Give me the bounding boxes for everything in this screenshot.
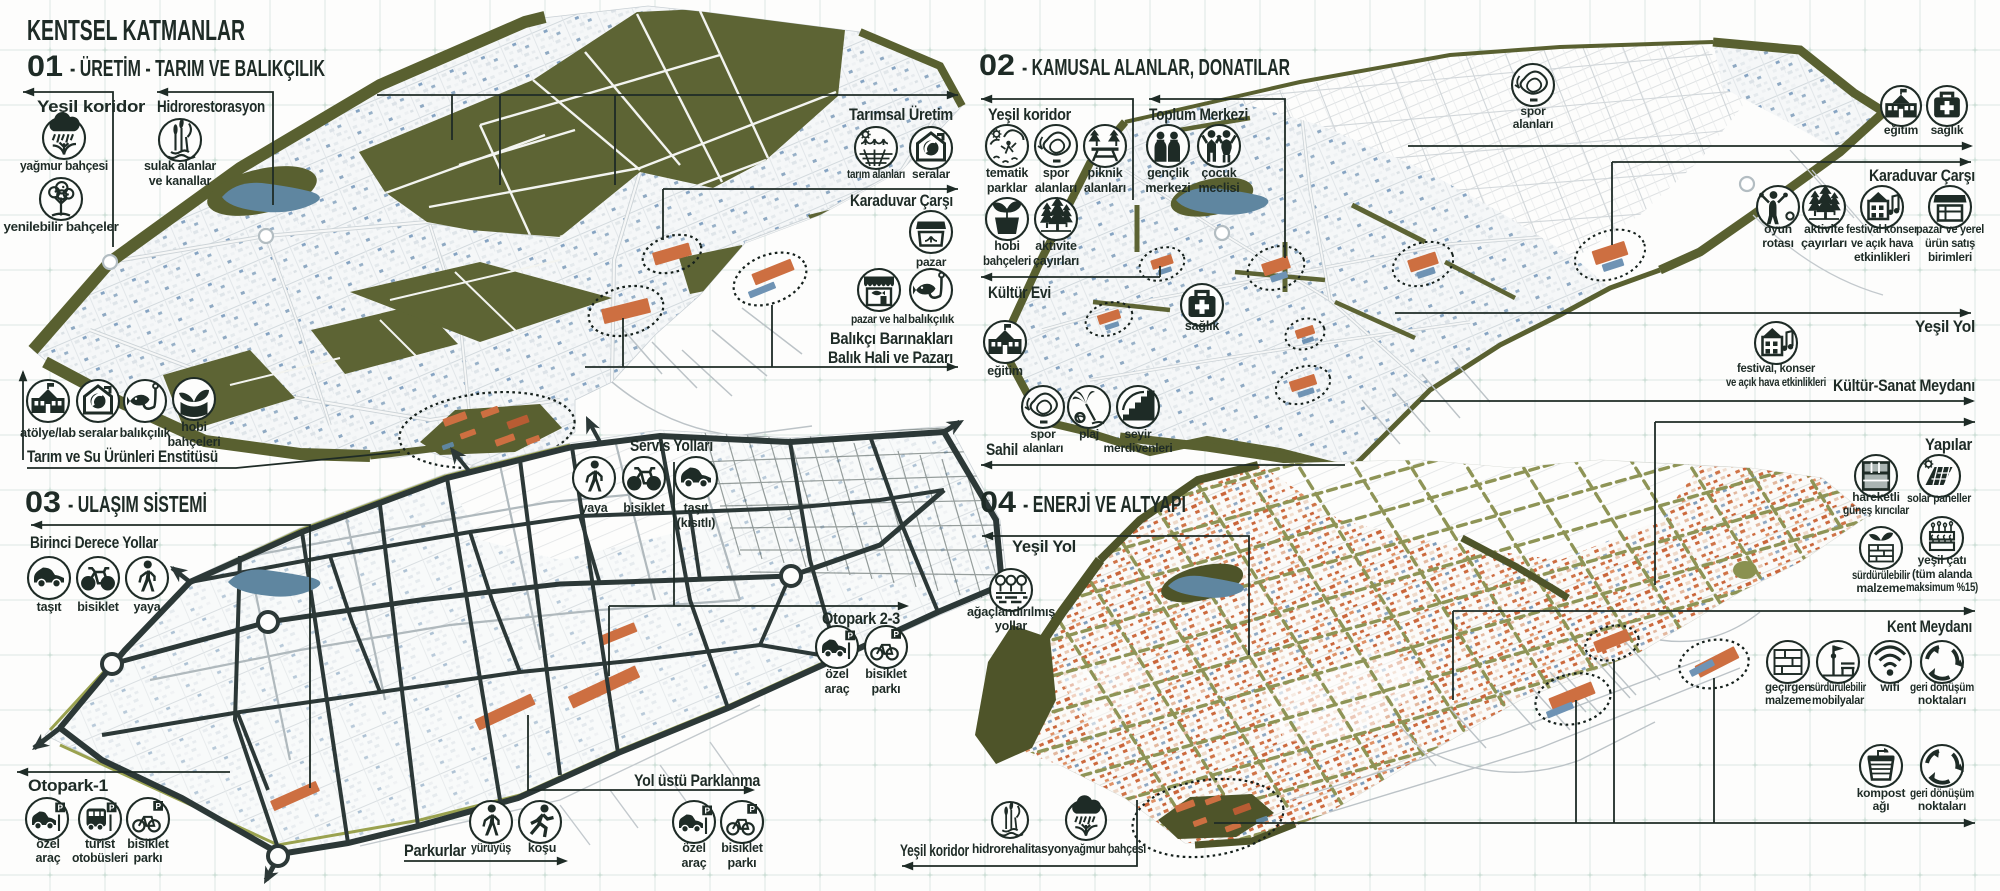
svg-text:aktivite: aktivite — [1035, 239, 1077, 253]
svg-text:sağlık: sağlık — [1185, 319, 1219, 333]
svg-text:Kültür Evi: Kültür Evi — [988, 284, 1051, 302]
svg-text:geçirgen: geçirgen — [1765, 680, 1811, 694]
svg-text:yürüyüş: yürüyüş — [471, 841, 511, 855]
svg-text:sürdürülebilir: sürdürülebilir — [1810, 680, 1866, 694]
svg-text:alanları: alanları — [1035, 181, 1077, 195]
svg-text:03: 03 — [25, 486, 61, 519]
svg-text:noktaları: noktaları — [1918, 693, 1966, 707]
svg-text:atölye/lab: atölye/lab — [20, 426, 76, 440]
svg-text:Birinci Derece Yollar: Birinci Derece Yollar — [30, 534, 159, 552]
svg-text:spor: spor — [1030, 427, 1056, 441]
svg-text:noktaları: noktaları — [1918, 799, 1966, 813]
svg-text:Tarım ve Su Ürünleri Enstitüsü: Tarım ve Su Ürünleri Enstitüsü — [27, 447, 218, 466]
svg-text:çayırları: çayırları — [1801, 236, 1847, 250]
svg-text:alanları: alanları — [1513, 117, 1553, 131]
svg-text:tematik: tematik — [986, 166, 1029, 180]
svg-text:yenilebilir bahçeler: yenilebilir bahçeler — [4, 220, 119, 234]
svg-text:Yeşil koridor: Yeşil koridor — [37, 98, 146, 116]
svg-text:P: P — [57, 803, 63, 812]
svg-text:malzeme: malzeme — [1765, 693, 1812, 707]
svg-text:ürün satış: ürün satış — [1925, 236, 1976, 250]
svg-text:spor: spor — [1520, 104, 1546, 118]
svg-text:KENTSEL KATMANLAR: KENTSEL KATMANLAR — [27, 15, 245, 47]
svg-text:01: 01 — [27, 50, 63, 83]
svg-text:etkinlikleri: etkinlikleri — [1854, 250, 1910, 264]
svg-text:piknik: piknik — [1088, 166, 1123, 180]
svg-text:geri dönüşüm: geri dönüşüm — [1910, 680, 1974, 694]
svg-text:aktivite: aktivite — [1804, 222, 1844, 236]
svg-text:festival, konser: festival, konser — [1737, 361, 1816, 375]
svg-text:Yol üstü Parklanma: Yol üstü Parklanma — [634, 772, 761, 790]
svg-text:parkı: parkı — [728, 856, 757, 870]
svg-text:araç: araç — [36, 851, 61, 865]
svg-text:(kısıtlı): (kısıtlı) — [677, 516, 716, 530]
svg-text:Balık Hali ve Pazarı: Balık Hali ve Pazarı — [828, 349, 953, 367]
svg-text:parklar: parklar — [987, 181, 1028, 195]
svg-text:çocuk: çocuk — [1201, 166, 1236, 180]
svg-text:seyir: seyir — [1124, 427, 1152, 441]
svg-text:Karaduvar Çarşı: Karaduvar Çarşı — [850, 192, 953, 210]
svg-text:araç: araç — [825, 682, 850, 696]
svg-text:balıkçılık: balıkçılık — [120, 426, 171, 440]
svg-text:merdivenleri: merdivenleri — [1104, 441, 1173, 455]
svg-text:hobi: hobi — [181, 420, 207, 434]
svg-text:otobüsleri: otobüsleri — [72, 851, 128, 865]
svg-text:turist: turist — [85, 837, 116, 851]
svg-text:Hidrorestorasyon: Hidrorestorasyon — [157, 98, 265, 116]
svg-text:wifi: wifi — [1879, 680, 1899, 694]
svg-text:yağmur bahçesi: yağmur bahçesi — [1068, 842, 1146, 856]
svg-text:malzeme: malzeme — [1856, 581, 1906, 595]
svg-text:pazar ve hal: pazar ve hal — [851, 312, 907, 326]
svg-text:02: 02 — [979, 49, 1015, 82]
svg-text:P: P — [109, 803, 115, 812]
svg-text:Kent Meydanı: Kent Meydanı — [1887, 618, 1972, 636]
svg-text:pazar: pazar — [916, 255, 947, 269]
svg-text:meclisi: meclisi — [1199, 181, 1240, 195]
svg-text:hareketli: hareketli — [1852, 490, 1900, 504]
svg-text:Karaduvar Çarşı: Karaduvar Çarşı — [1869, 167, 1975, 185]
svg-text:gençlik: gençlik — [1147, 166, 1189, 180]
svg-text:kompost: kompost — [1857, 786, 1906, 800]
svg-text:özel: özel — [825, 667, 849, 681]
svg-text:rotası: rotası — [1762, 236, 1793, 250]
svg-text:özel: özel — [682, 841, 706, 855]
svg-text:taşıt: taşıt — [684, 501, 710, 515]
svg-text:parkı: parkı — [872, 682, 901, 696]
svg-text:alanları: alanları — [1084, 181, 1126, 195]
svg-text:eğitim: eğitim — [1884, 123, 1918, 137]
svg-text:seralar: seralar — [78, 426, 118, 440]
svg-text:maksimum %15): maksimum %15) — [1906, 580, 1978, 594]
svg-text:P: P — [893, 630, 899, 639]
svg-text:bisiklet: bisiklet — [865, 667, 908, 681]
svg-text:parkı: parkı — [134, 851, 163, 865]
svg-text:sağlık: sağlık — [1931, 123, 1964, 137]
svg-text:(tüm alanda: (tüm alanda — [1912, 567, 1973, 581]
svg-text:Servis Yolları: Servis Yolları — [630, 437, 713, 455]
svg-text:alanları: alanları — [1023, 441, 1063, 455]
svg-text:Kültür-Sanat Meydanı: Kültür-Sanat Meydanı — [1833, 377, 1975, 395]
svg-text:P: P — [749, 805, 755, 814]
svg-text:pazar ve yerel: pazar ve yerel — [1916, 222, 1984, 236]
svg-text:bahçeleri: bahçeleri — [167, 435, 220, 449]
svg-text:yollar: yollar — [995, 619, 1027, 633]
svg-text:yaya: yaya — [580, 501, 608, 515]
svg-text:ve açık hava etkinlikleri: ve açık hava etkinlikleri — [1726, 375, 1826, 389]
svg-text:mobilyalar: mobilyalar — [1812, 693, 1865, 707]
svg-text:eğitim: eğitim — [987, 364, 1023, 378]
svg-text:bahçeleri: bahçeleri — [983, 254, 1031, 268]
svg-text:ve kanallar: ve kanallar — [149, 174, 212, 188]
svg-text:Yapılar: Yapılar — [1925, 436, 1973, 454]
svg-text:balıkçılık: balıkçılık — [908, 312, 955, 326]
svg-text:- ULAŞIM SİSTEMİ: - ULAŞIM SİSTEMİ — [68, 491, 207, 517]
svg-text:hobi: hobi — [994, 239, 1020, 253]
svg-text:- ENERJİ VE ALTYAPI: - ENERJİ VE ALTYAPI — [1023, 491, 1186, 517]
svg-text:birimleri: birimleri — [1928, 250, 1972, 264]
svg-text:güneş kırıcılar: güneş kırıcılar — [1843, 503, 1910, 517]
svg-text:hidrorehalitasyon: hidrorehalitasyon — [972, 842, 1068, 856]
svg-text:ve açık hava: ve açık hava — [1851, 236, 1914, 250]
svg-text:yağmur bahçesi: yağmur bahçesi — [20, 159, 108, 173]
svg-text:bisiklet: bisiklet — [623, 501, 666, 515]
svg-text:Yeşil Yol: Yeşil Yol — [1915, 318, 1975, 336]
svg-text:Yeşil koridor: Yeşil koridor — [988, 106, 1072, 124]
svg-text:sulak alanlar: sulak alanlar — [144, 159, 216, 173]
svg-text:çayırları: çayırları — [1033, 254, 1079, 268]
svg-text:Parkurlar: Parkurlar — [404, 842, 467, 860]
svg-text:Yeşil koridor: Yeşil koridor — [900, 842, 970, 860]
svg-text:P: P — [704, 806, 710, 815]
svg-text:- KAMUSAL ALANLAR, DONATILAR: - KAMUSAL ALANLAR, DONATILAR — [1022, 54, 1290, 80]
svg-text:koşu: koşu — [528, 841, 556, 855]
svg-text:P: P — [847, 631, 853, 640]
svg-text:solar paneller: solar paneller — [1907, 491, 1972, 505]
svg-text:bisiklet: bisiklet — [721, 841, 764, 855]
svg-text:bisiklet: bisiklet — [127, 837, 170, 851]
svg-text:araç: araç — [682, 856, 707, 870]
svg-text:seralar: seralar — [912, 167, 950, 181]
svg-text:plaj: plaj — [1079, 427, 1099, 441]
svg-text:Balıkçı Barınakları: Balıkçı Barınakları — [830, 330, 953, 348]
svg-text:yaya: yaya — [133, 600, 161, 614]
svg-text:ağı: ağı — [1873, 799, 1890, 813]
svg-text:tarım alanları: tarım alanları — [847, 167, 905, 181]
svg-text:Sahil: Sahil — [986, 441, 1018, 459]
svg-text:spor: spor — [1043, 166, 1070, 180]
svg-text:bisiklet: bisiklet — [77, 600, 120, 614]
svg-text:taşıt: taşıt — [37, 600, 63, 614]
svg-text:geri dönüşüm: geri dönüşüm — [1910, 786, 1974, 800]
svg-text:Yeşil Yol: Yeşil Yol — [1012, 538, 1076, 556]
svg-text:- ÜRETİM - TARIM VE BALIKÇILIK: - ÜRETİM - TARIM VE BALIKÇILIK — [70, 55, 325, 81]
svg-text:yeşil çatı: yeşil çatı — [1918, 553, 1967, 567]
svg-text:özel: özel — [36, 837, 60, 851]
svg-text:festival konser: festival konser — [1846, 222, 1919, 236]
svg-text:Tarımsal Üretim: Tarımsal Üretim — [849, 105, 953, 124]
svg-text:ağaçlandırılmış: ağaçlandırılmış — [967, 605, 1055, 619]
svg-text:Otopark-1: Otopark-1 — [28, 777, 108, 795]
svg-text:sürdürülebilir: sürdürülebilir — [1852, 568, 1910, 582]
svg-text:P: P — [155, 802, 161, 811]
svg-text:merkezi: merkezi — [1145, 181, 1190, 195]
svg-text:oyun: oyun — [1764, 222, 1792, 236]
svg-text:04: 04 — [980, 486, 1016, 519]
svg-text:Toplum Merkezi: Toplum Merkezi — [1149, 106, 1248, 124]
